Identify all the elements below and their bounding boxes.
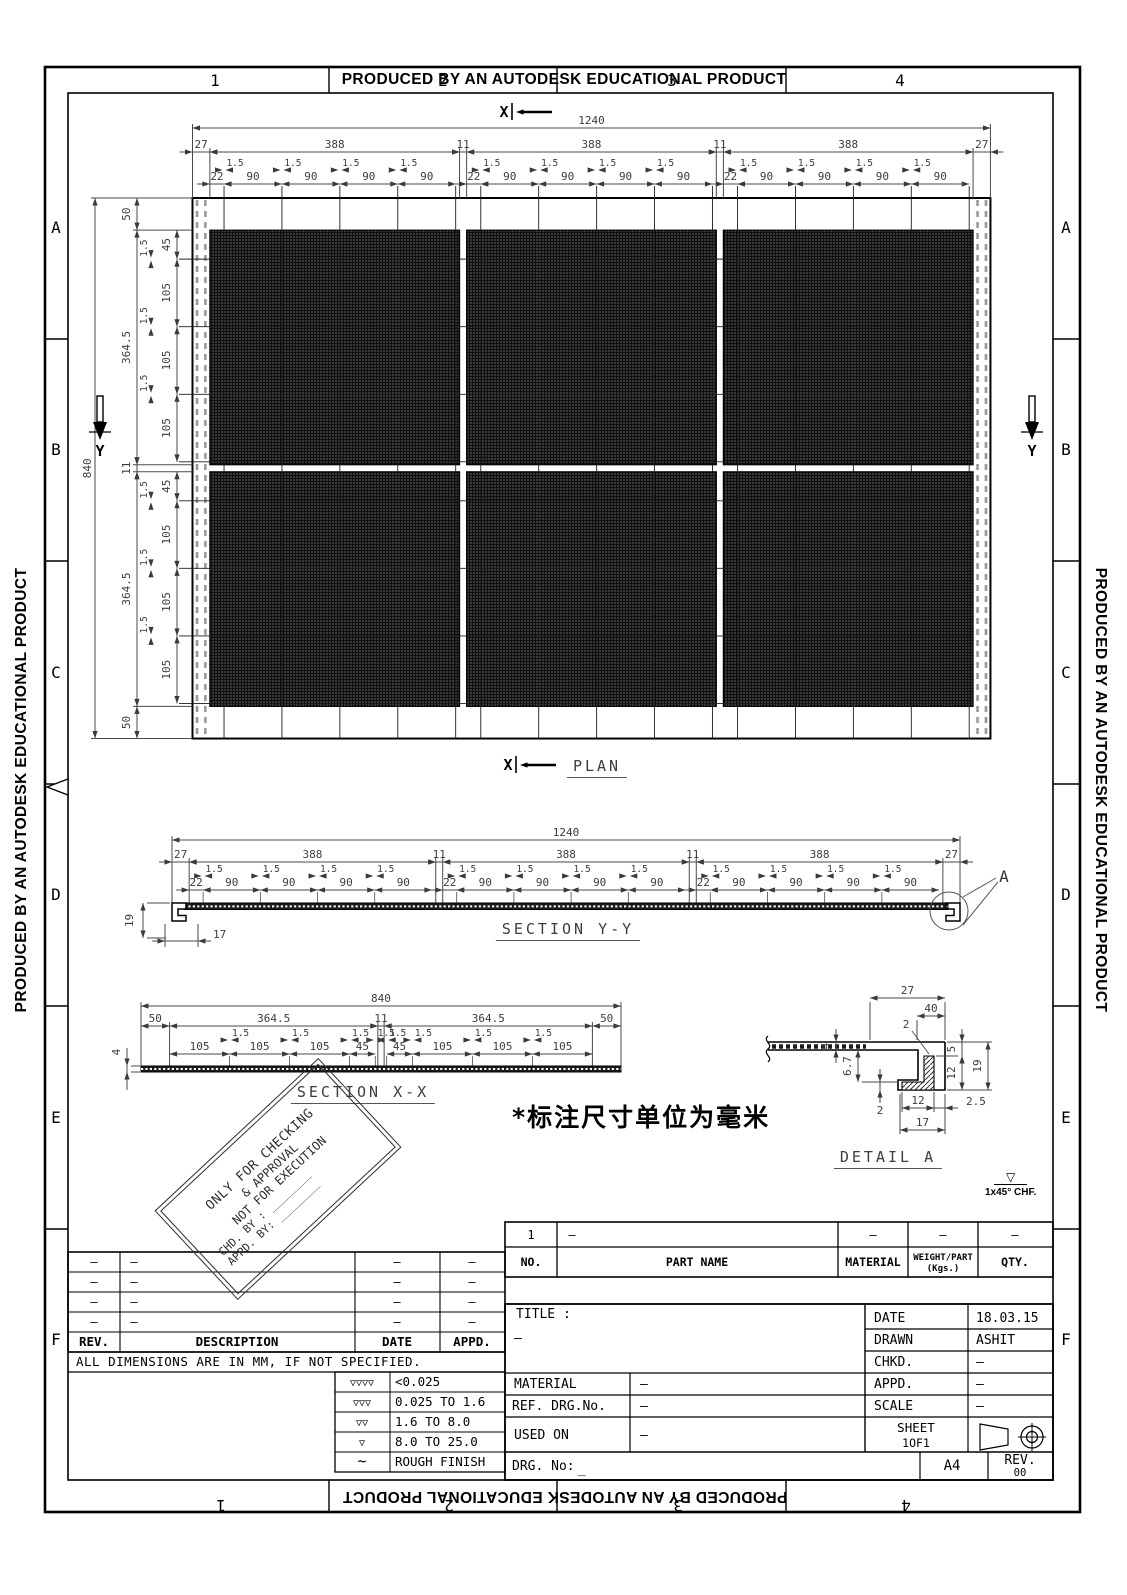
zone-letter: A bbox=[51, 218, 61, 237]
dim-label: _ bbox=[578, 1462, 586, 1477]
dim-label: 11 bbox=[713, 138, 726, 151]
dim-label: – bbox=[90, 1255, 98, 1269]
zone-letter: E bbox=[51, 1108, 61, 1127]
dim-label: 5 bbox=[945, 1046, 958, 1053]
dim-label: 364.5 bbox=[472, 1012, 505, 1025]
section-yy-title: SECTION Y-Y bbox=[496, 920, 640, 941]
dim-label: 17 bbox=[213, 928, 226, 941]
dim-label: 1.5 bbox=[535, 1028, 552, 1039]
dim-label: 90 bbox=[397, 876, 410, 889]
dim-label: TITLE : bbox=[516, 1307, 571, 1322]
dim-label: 364.5 bbox=[120, 331, 133, 364]
dim-label: – bbox=[393, 1275, 401, 1289]
dim-label: 1.5 bbox=[798, 158, 815, 169]
dim-label: 90 bbox=[225, 876, 238, 889]
dim-label: 90 bbox=[876, 170, 889, 183]
dim-label: 1OF1 bbox=[902, 1436, 930, 1450]
dim-label: 11 bbox=[433, 848, 446, 861]
dim-label: 22 bbox=[210, 170, 223, 183]
producer-text-top: PRODUCED BY AN AUTODESK EDUCATIONAL PROD… bbox=[342, 71, 787, 89]
dim-label: – bbox=[976, 1377, 984, 1392]
dim-label: 27 bbox=[945, 848, 958, 861]
dim-label: SHEET bbox=[897, 1420, 935, 1435]
dim-label: 22 bbox=[697, 876, 710, 889]
dim-label: 105 bbox=[160, 283, 173, 303]
dim-label: 90 bbox=[362, 170, 375, 183]
dim-label: 1.5 bbox=[483, 158, 500, 169]
dimension-note: ALL DIMENSIONS ARE IN MM, IF NOT SPECIFI… bbox=[76, 1354, 421, 1369]
dim-label: 22 bbox=[190, 876, 203, 889]
dim-label: 45 bbox=[160, 480, 173, 493]
dim-label: 90 bbox=[420, 170, 433, 183]
dim-label: 90 bbox=[760, 170, 773, 183]
dim-label: – bbox=[468, 1255, 476, 1269]
dim-label: CHKD. bbox=[874, 1355, 913, 1370]
section-marker-x: X bbox=[499, 103, 508, 121]
dim-label: 19 bbox=[123, 914, 136, 927]
zone-number: 4 bbox=[901, 1496, 911, 1515]
section-marker-x: X bbox=[503, 756, 512, 774]
dim-label: 90 bbox=[536, 876, 549, 889]
dim-label: MATERIAL bbox=[514, 1377, 577, 1392]
dim-label: 27 bbox=[174, 848, 187, 861]
dim-label: 19 bbox=[971, 1059, 984, 1072]
dim-label: 105 bbox=[432, 1040, 452, 1053]
dim-label: – bbox=[568, 1228, 576, 1242]
dim-label: 90 bbox=[282, 876, 295, 889]
zone-letter: D bbox=[1061, 885, 1071, 904]
dim-label: QTY. bbox=[1001, 1255, 1029, 1269]
dim-label: – bbox=[640, 1428, 648, 1443]
dim-label: 1.5 bbox=[139, 549, 150, 566]
parts-table: 1––––NO.PART NAMEMATERIALWEIGHT/PART(Kgs… bbox=[505, 1222, 1053, 1277]
dim-label: 840 bbox=[371, 992, 391, 1005]
zone-number: 1 bbox=[216, 1496, 226, 1515]
detail-a-view: 27402512196.742122.517 bbox=[766, 984, 992, 1134]
producer-text-right: PRODUCED BY AN AUTODESK EDUCATIONAL PROD… bbox=[1091, 568, 1109, 1013]
dim-label: 388 bbox=[303, 848, 323, 861]
dim-label: PART NAME bbox=[666, 1255, 728, 1269]
dim-label: 90 bbox=[650, 876, 663, 889]
dim-label: A4 bbox=[944, 1458, 961, 1474]
dim-label: 2 bbox=[877, 1104, 884, 1117]
dim-label: 1.5 bbox=[770, 864, 787, 875]
dim-label: 1 bbox=[527, 1228, 534, 1242]
dim-label: – bbox=[640, 1399, 648, 1414]
dim-label: DATE bbox=[874, 1311, 905, 1326]
dim-label: 22 bbox=[724, 170, 737, 183]
dim-label: 1.5 bbox=[713, 864, 730, 875]
plan-view: 12402738811388113882722909090901.51.51.5… bbox=[81, 103, 1043, 774]
dim-label: ASHIT bbox=[976, 1333, 1015, 1348]
dim-label: 105 bbox=[160, 660, 173, 680]
dim-label: 90 bbox=[246, 170, 259, 183]
zone-letter: E bbox=[1061, 1108, 1071, 1127]
cad-linework: 11223344AABBCCDDEEFF12402738811388113882… bbox=[0, 0, 1127, 1595]
dim-label: – bbox=[1011, 1228, 1019, 1242]
dim-label: 00 bbox=[1014, 1467, 1027, 1479]
dim-label: – bbox=[90, 1295, 98, 1309]
dim-label: 2.5 bbox=[966, 1095, 986, 1108]
dim-label: 1.5 bbox=[292, 1028, 309, 1039]
zone-letter: A bbox=[1061, 218, 1071, 237]
dim-label: – bbox=[514, 1331, 522, 1346]
dim-label: 1.5 bbox=[352, 1028, 369, 1039]
dim-label: 90 bbox=[904, 876, 917, 889]
dim-label: 1.5 bbox=[599, 158, 616, 169]
zone-number: 4 bbox=[895, 71, 905, 90]
plan-title: PLAN bbox=[567, 757, 627, 778]
dim-label: NO. bbox=[521, 1255, 542, 1269]
dim-label: 1.5 bbox=[657, 158, 674, 169]
dim-label: 1.5 bbox=[342, 158, 359, 169]
dim-label: 90 bbox=[561, 170, 574, 183]
section-marker-y: Y bbox=[95, 442, 104, 460]
dim-label: 364.5 bbox=[120, 573, 133, 606]
dim-label: – bbox=[976, 1399, 984, 1414]
dim-label: 1.5 bbox=[139, 240, 150, 257]
dim-label: 1.5 bbox=[139, 481, 150, 498]
zone-letter: B bbox=[51, 440, 61, 459]
dim-label: 1.5 bbox=[415, 1028, 432, 1039]
dim-label: 388 bbox=[838, 138, 858, 151]
dim-label: 388 bbox=[325, 138, 345, 151]
zone-letter: F bbox=[51, 1330, 61, 1349]
dim-label: 1240 bbox=[578, 114, 605, 127]
dim-label: 17 bbox=[916, 1116, 929, 1129]
dim-label: 1.5 bbox=[389, 1028, 406, 1039]
dim-label: 27 bbox=[901, 984, 914, 997]
dim-label: 1.5 bbox=[377, 864, 394, 875]
dim-label: 50 bbox=[120, 716, 133, 729]
dim-label: REV. bbox=[1004, 1453, 1035, 1468]
dim-label: 388 bbox=[582, 138, 602, 151]
revision-table: ––––––––––––––––REV.DESCRIPTIONDATEAPPD.… bbox=[68, 1252, 505, 1372]
dim-label: 1.5 bbox=[475, 1028, 492, 1039]
dim-label: 105 bbox=[552, 1040, 572, 1053]
dim-label: – bbox=[130, 1275, 138, 1289]
dim-label: REV. bbox=[79, 1334, 109, 1349]
zone-letter: F bbox=[1061, 1330, 1071, 1349]
dim-label: REF. DRG.No. bbox=[512, 1399, 606, 1414]
dim-label: APPD. bbox=[874, 1377, 913, 1392]
dim-label: – bbox=[468, 1295, 476, 1309]
dim-label: 1.5 bbox=[884, 864, 901, 875]
dim-label: 105 bbox=[250, 1040, 270, 1053]
dim-label: 1.5 bbox=[284, 158, 301, 169]
dim-label: 1.5 bbox=[827, 864, 844, 875]
dim-label: 90 bbox=[479, 876, 492, 889]
zone-letter: D bbox=[51, 885, 61, 904]
finish-range: ROUGH FINISH bbox=[395, 1454, 485, 1469]
dim-label: 11 bbox=[374, 1012, 387, 1025]
dim-label: 1.5 bbox=[574, 864, 591, 875]
dim-label: SCALE bbox=[874, 1399, 913, 1414]
dim-label: – bbox=[130, 1255, 138, 1269]
section-marker-y: Y bbox=[1027, 442, 1036, 460]
dim-label: 364.5 bbox=[257, 1012, 290, 1025]
dim-label: – bbox=[939, 1228, 947, 1242]
finish-range: 1.6 TO 8.0 bbox=[395, 1414, 470, 1429]
dim-label: – bbox=[393, 1295, 401, 1309]
detail-a-title: DETAIL A bbox=[834, 1148, 942, 1169]
dim-label: 105 bbox=[160, 418, 173, 438]
center-mark-icon bbox=[47, 779, 68, 795]
finish-range: <0.025 bbox=[395, 1374, 440, 1389]
dim-label: 4 bbox=[110, 1048, 123, 1055]
zone-letter: B bbox=[1061, 440, 1071, 459]
dim-label: 1240 bbox=[553, 826, 580, 839]
dim-label: 2 bbox=[903, 1018, 910, 1031]
chamfer-symbol-icon: ▽ bbox=[994, 1172, 1027, 1185]
dim-label: 18.03.15 bbox=[976, 1311, 1039, 1326]
dim-label: 90 bbox=[732, 876, 745, 889]
dim-label: 12 bbox=[911, 1094, 924, 1107]
dim-label: 1.5 bbox=[631, 864, 648, 875]
dim-label: DATE bbox=[382, 1334, 412, 1349]
dim-label: 90 bbox=[593, 876, 606, 889]
drawing-sheet: 11223344AABBCCDDEEFF12402738811388113882… bbox=[0, 0, 1127, 1595]
dim-label: 90 bbox=[503, 170, 516, 183]
finish-range: 8.0 TO 25.0 bbox=[395, 1434, 478, 1449]
dim-label: – bbox=[90, 1315, 98, 1329]
dim-label: – bbox=[640, 1377, 648, 1392]
dim-label: 105 bbox=[160, 525, 173, 545]
finish-symbol: ▽▽▽▽ bbox=[350, 1378, 374, 1389]
dim-label: 1.5 bbox=[541, 158, 558, 169]
dim-label: – bbox=[130, 1295, 138, 1309]
dim-label: 105 bbox=[310, 1040, 330, 1053]
dim-label: DRG. No: bbox=[512, 1459, 575, 1474]
dim-label: 22 bbox=[467, 170, 480, 183]
dim-label: 1.5 bbox=[206, 864, 223, 875]
dim-label: 1.5 bbox=[516, 864, 533, 875]
dim-label: 6.7 bbox=[841, 1056, 854, 1076]
dim-label: 1.5 bbox=[740, 158, 757, 169]
dim-label: 1.5 bbox=[320, 864, 337, 875]
finish-range: 0.025 TO 1.6 bbox=[395, 1394, 485, 1409]
dim-label: 105 bbox=[160, 592, 173, 612]
title-block: TITLE :–MATERIAL–REF. DRG.No.–USED ON–DR… bbox=[505, 1304, 1053, 1480]
dim-label: 90 bbox=[847, 876, 860, 889]
dim-label: 388 bbox=[810, 848, 830, 861]
zone-letter: C bbox=[51, 663, 61, 682]
dim-label: – bbox=[468, 1275, 476, 1289]
finish-symbol: ▽ bbox=[359, 1438, 365, 1449]
dim-label: 22 bbox=[443, 876, 456, 889]
dim-label: 45 bbox=[160, 238, 173, 251]
dim-label: 388 bbox=[556, 848, 576, 861]
dim-label: 1.5 bbox=[139, 616, 150, 633]
dim-label: – bbox=[393, 1255, 401, 1269]
zone-letter: C bbox=[1061, 663, 1071, 682]
units-note: *标注尺寸单位为毫米 bbox=[512, 1098, 770, 1134]
dim-label: – bbox=[90, 1275, 98, 1289]
dim-label: 90 bbox=[340, 876, 353, 889]
dim-label: 105 bbox=[492, 1040, 512, 1053]
dim-label: 11 bbox=[120, 462, 133, 475]
dim-label: 1.5 bbox=[263, 864, 280, 875]
dim-label: 27 bbox=[195, 138, 208, 151]
dim-label: 105 bbox=[160, 351, 173, 371]
dim-label: 11 bbox=[686, 848, 699, 861]
dim-label: 50 bbox=[120, 207, 133, 220]
dim-label: – bbox=[130, 1315, 138, 1329]
finish-symbol: ~ bbox=[357, 1452, 366, 1470]
dim-label: 1.5 bbox=[139, 307, 150, 324]
dim-label: 12 bbox=[945, 1066, 958, 1079]
chamfer-label: 1x45° CHF. bbox=[985, 1187, 1036, 1198]
dim-label: DRAWN bbox=[874, 1333, 913, 1348]
finish-symbol: ▽▽▽ bbox=[353, 1398, 371, 1409]
dim-label: – bbox=[468, 1315, 476, 1329]
dim-label: 27 bbox=[975, 138, 988, 151]
dim-label: 4 bbox=[819, 1042, 832, 1049]
dim-label: – bbox=[976, 1355, 984, 1370]
dim-label: 90 bbox=[789, 876, 802, 889]
detail-ref-label: A bbox=[999, 867, 1009, 886]
zone-number: 1 bbox=[210, 71, 220, 90]
dim-label: 1.5 bbox=[226, 158, 243, 169]
dim-label: – bbox=[869, 1228, 877, 1242]
dim-label: 50 bbox=[600, 1012, 613, 1025]
dim-label: 1.5 bbox=[232, 1028, 249, 1039]
producer-text-left: PRODUCED BY AN AUTODESK EDUCATIONAL PROD… bbox=[13, 568, 31, 1013]
dim-label: 11 bbox=[456, 138, 469, 151]
dim-label: MATERIAL bbox=[845, 1255, 900, 1269]
projection-symbol-icon bbox=[980, 1423, 1046, 1451]
dim-label: 1.5 bbox=[856, 158, 873, 169]
producer-text-bottom: PRODUCED BY AN AUTODESK EDUCATIONAL PROD… bbox=[343, 1487, 788, 1505]
dim-label: – bbox=[393, 1315, 401, 1329]
dim-label: 1.5 bbox=[400, 158, 417, 169]
dim-label: DESCRIPTION bbox=[196, 1334, 279, 1349]
dim-label: (Kgs.) bbox=[927, 1264, 960, 1274]
dim-label: 105 bbox=[190, 1040, 210, 1053]
dim-label: 90 bbox=[934, 170, 947, 183]
finish-table: ▽▽▽▽<0.025▽▽▽0.025 TO 1.6▽▽1.6 TO 8.0▽8.… bbox=[335, 1372, 505, 1472]
finish-symbol: ▽▽ bbox=[356, 1418, 368, 1429]
dim-label: 1.5 bbox=[459, 864, 476, 875]
dim-label: 90 bbox=[619, 170, 632, 183]
dim-label: 90 bbox=[304, 170, 317, 183]
dim-label: 90 bbox=[677, 170, 690, 183]
dim-label: 840 bbox=[81, 458, 94, 478]
dim-label: 50 bbox=[149, 1012, 162, 1025]
dim-label: WEIGHT/PART bbox=[913, 1253, 973, 1263]
chamfer-note: ▽ 1x45° CHF. bbox=[985, 1168, 1036, 1198]
dim-label: 90 bbox=[818, 170, 831, 183]
dim-label: USED ON bbox=[514, 1428, 569, 1443]
dim-label: APPD. bbox=[453, 1334, 491, 1349]
dim-label: 1.5 bbox=[914, 158, 931, 169]
section-xx-view: 84050364.511364.550105451051051051054510… bbox=[110, 992, 621, 1090]
dim-label: 40 bbox=[924, 1002, 937, 1015]
dim-label: 1.5 bbox=[139, 375, 150, 392]
